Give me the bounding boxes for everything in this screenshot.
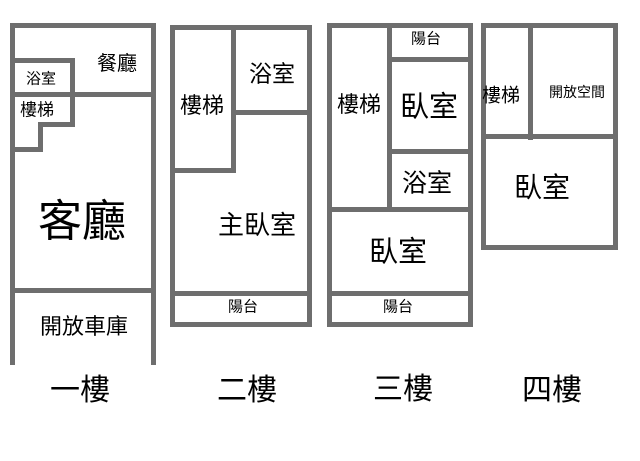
wall bbox=[481, 134, 618, 139]
wall bbox=[528, 23, 533, 140]
wall bbox=[481, 23, 618, 28]
room-label-stairs-4f: 樓梯 bbox=[482, 87, 520, 106]
room-label-open-space: 開放空間 bbox=[549, 85, 605, 99]
floor-plan-4f: 樓梯 開放空間 臥室 四樓 bbox=[0, 0, 640, 461]
floor-plan-diagram: 餐廳 浴室 樓梯 客廳 開放車庫 一樓 樓梯 浴室 主臥室 陽台 二樓 樓梯 陽… bbox=[0, 0, 640, 461]
room-label-bedroom-4f: 臥室 bbox=[514, 174, 570, 202]
floor-label-4f: 四樓 bbox=[522, 376, 582, 406]
wall bbox=[481, 245, 618, 250]
